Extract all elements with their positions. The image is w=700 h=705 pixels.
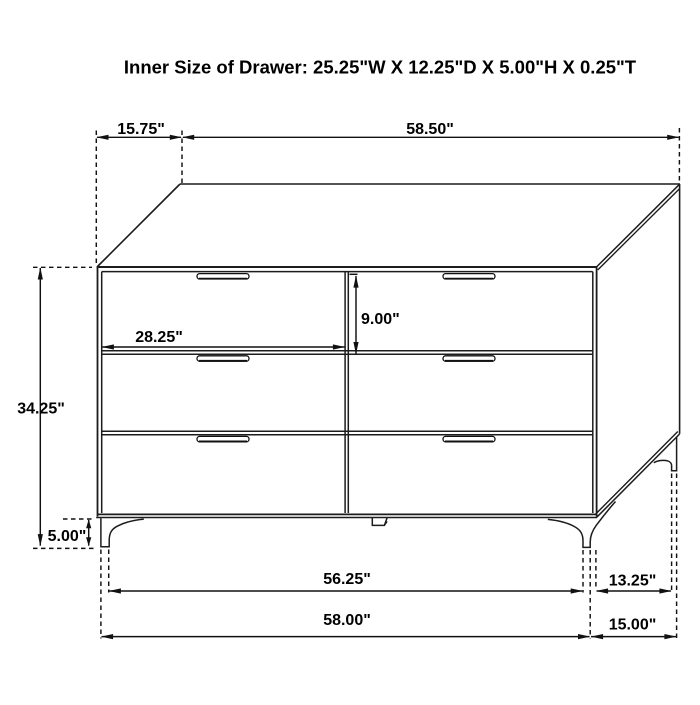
svg-text:Inner Size of Drawer: 25.25"W: Inner Size of Drawer: 25.25"W X 12.25"D … bbox=[124, 57, 637, 78]
svg-text:28.25": 28.25" bbox=[135, 329, 183, 346]
svg-text:15.00": 15.00" bbox=[609, 617, 657, 634]
svg-text:56.25": 56.25" bbox=[323, 571, 371, 588]
svg-text:58.00": 58.00" bbox=[323, 612, 371, 629]
svg-text:5.00": 5.00" bbox=[48, 528, 87, 545]
svg-text:9.00": 9.00" bbox=[361, 311, 400, 328]
svg-text:15.75": 15.75" bbox=[117, 121, 165, 138]
svg-text:34.25": 34.25" bbox=[17, 401, 65, 418]
svg-text:13.25": 13.25" bbox=[609, 573, 657, 590]
svg-text:58.50": 58.50" bbox=[406, 121, 454, 138]
